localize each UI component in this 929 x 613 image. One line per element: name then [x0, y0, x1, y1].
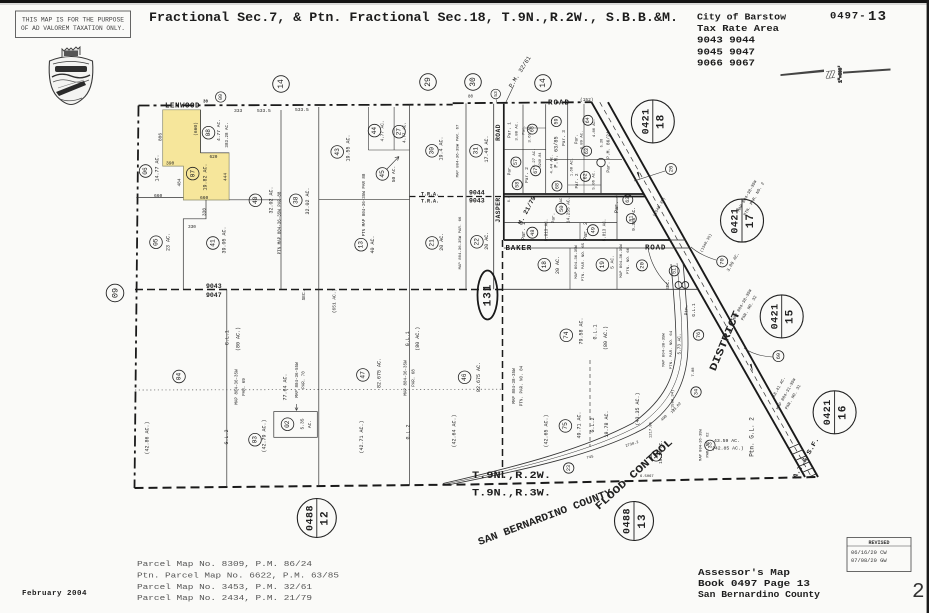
svg-text:21: 21	[429, 239, 436, 247]
svg-text:444: 444	[224, 173, 229, 181]
svg-text:05: 05	[153, 238, 160, 246]
svg-text:T.R.A.: T.R.A.	[421, 199, 439, 205]
svg-text:390: 390	[166, 161, 175, 167]
svg-text:7.88: 7.88	[692, 367, 696, 377]
svg-text:330: 330	[188, 225, 196, 230]
svg-text:G.L.1: G.L.1	[692, 303, 697, 317]
svg-text:MAP 804-36-35W: MAP 804-36-35W	[235, 369, 239, 405]
svg-text:06: 06	[142, 167, 149, 175]
svg-text:4.77 AC.: 4.77 AC.	[216, 119, 222, 141]
svg-text:G.L.2: G.L.2	[590, 417, 596, 432]
svg-text:70: 70	[719, 258, 726, 265]
svg-text:68: 68	[554, 183, 560, 189]
svg-text:67: 67	[533, 168, 539, 174]
svg-text:80: 80	[468, 96, 474, 100]
svg-text:G.L.1: G.L.1	[405, 331, 411, 346]
svg-text:Book 0497 Page 13: Book 0497 Page 13	[698, 579, 810, 589]
svg-text:(42.86 AC.): (42.86 AC.)	[144, 421, 150, 454]
svg-text:City of Barstow: City of Barstow	[697, 12, 786, 23]
svg-text:19.82 AC.: 19.82 AC.	[202, 163, 208, 190]
svg-text:02: 02	[284, 420, 291, 428]
svg-text:22: 22	[474, 238, 481, 246]
svg-text:38: 38	[292, 196, 299, 204]
svg-text:3248.84: 3248.84	[539, 152, 543, 167]
svg-text:ROAD: ROAD	[645, 245, 666, 253]
svg-text:MAP 804-36-35W PAR. 67: MAP 804-36-35W PAR. 67	[457, 124, 461, 177]
svg-text:17.49 AC.: 17.49 AC.	[484, 135, 490, 162]
svg-text:9.356 AC.: 9.356 AC.	[632, 207, 637, 231]
svg-text:13: 13	[637, 513, 649, 528]
svg-text:4.77 AC.: 4.77 AC.	[381, 120, 386, 141]
svg-text:9066 9067: 9066 9067	[697, 58, 755, 69]
svg-text:PAR. NO. 62: PAR. NO. 62	[707, 432, 711, 458]
svg-text:74: 74	[563, 331, 570, 339]
svg-text:26: 26	[667, 166, 674, 173]
svg-text:9043: 9043	[206, 283, 222, 290]
svg-text:40 AC.: 40 AC.	[370, 235, 376, 253]
svg-text:MAP 804-38-35W: MAP 804-38-35W	[513, 368, 517, 404]
svg-text:REVISED: REVISED	[868, 540, 889, 546]
svg-text:34: 34	[693, 389, 699, 395]
svg-text:19.78 AC.: 19.78 AC.	[604, 410, 610, 437]
svg-text:AC.: AC.	[560, 196, 564, 203]
svg-text:484: 484	[177, 178, 182, 186]
svg-text:79.58 AC.: 79.58 AC.	[578, 317, 584, 344]
svg-text:23: 23	[566, 465, 572, 471]
svg-text:49: 49	[589, 227, 596, 234]
svg-text:23 AC.: 23 AC.	[165, 233, 171, 251]
svg-text:PAR. 69: PAR. 69	[243, 378, 247, 396]
svg-text:13: 13	[358, 241, 365, 249]
svg-text:5.35: 5.35	[300, 418, 306, 429]
svg-text:(43.35 AC.): (43.35 AC.)	[635, 392, 641, 425]
svg-text:9043 9044: 9043 9044	[697, 35, 755, 46]
svg-text:(80 AC.): (80 AC.)	[236, 327, 242, 351]
svg-text:(651 AC.): (651 AC.)	[332, 289, 338, 313]
svg-text:6.5067: 6.5067	[640, 475, 654, 479]
svg-text:09: 09	[110, 288, 120, 298]
svg-text:51: 51	[672, 268, 678, 274]
svg-text:MAP 804-36-35W: MAP 804-36-35W	[700, 428, 704, 461]
svg-text:5 AC.: 5 AC.	[610, 255, 616, 269]
svg-text:(42.71 AC.): (42.71 AC.)	[359, 420, 365, 453]
svg-text:G.L.1: G.L.1	[593, 324, 599, 339]
svg-text:Tax Rate Area: Tax Rate Area	[697, 23, 779, 34]
svg-text:30: 30	[469, 77, 478, 87]
svg-text:T.9N.,R.3W.: T.9N.,R.3W.	[472, 489, 551, 500]
svg-text:MAP 804-36-35W: MAP 804-36-35W	[575, 245, 579, 279]
svg-text:32.02 AC.: 32.02 AC.	[305, 187, 311, 214]
svg-text:(42.85 AC.): (42.85 AC.)	[712, 446, 744, 452]
svg-text:12: 12	[320, 510, 332, 525]
svg-text:Parcel Map No. 8309, P.M. 86/2: Parcel Map No. 8309, P.M. 86/24	[137, 561, 312, 569]
svg-text:PTN. NO. 66: PTN. NO. 66	[627, 247, 631, 274]
svg-text:75: 75	[562, 422, 569, 430]
svg-text:0488: 0488	[623, 508, 634, 534]
svg-text:15: 15	[785, 309, 797, 324]
svg-text:2: 2	[912, 581, 925, 604]
svg-text:533.5: 533.5	[295, 107, 309, 113]
svg-text:Par. 2: Par. 2	[576, 173, 580, 189]
svg-text:14.77 AC.: 14.77 AC.	[154, 154, 160, 181]
svg-text:4.27 AC.: 4.27 AC.	[533, 148, 537, 167]
svg-text:63: 63	[625, 197, 631, 203]
svg-text:39.05 AC.: 39.05 AC.	[222, 226, 228, 253]
svg-text:62: 62	[583, 173, 589, 179]
svg-text:76: 76	[696, 332, 702, 338]
svg-text:0421: 0421	[641, 108, 652, 134]
svg-text:41: 41	[210, 239, 217, 247]
svg-text:09: 09	[218, 94, 224, 100]
svg-text:(42.65 AC.): (42.65 AC.)	[544, 414, 550, 447]
svg-text:MAP 804-36-35W PAR. 66: MAP 804-36-35W PAR. 66	[459, 216, 463, 269]
svg-text:G.L.2: G.L.2	[224, 429, 230, 444]
svg-text:(80 AC.): (80 AC.)	[603, 326, 609, 350]
svg-text:620: 620	[210, 155, 218, 160]
svg-text:333: 333	[234, 108, 243, 114]
svg-text:SEC.: SEC.	[665, 279, 671, 290]
svg-text:Parcel Map No. 2434, P.M. 21/7: Parcel Map No. 2434, P.M. 21/79	[137, 595, 312, 603]
svg-text:Par. 1: Par. 1	[508, 122, 513, 138]
svg-text:5.73 AC.: 5.73 AC.	[678, 333, 683, 354]
svg-text:19.4 AC.: 19.4 AC.	[438, 136, 444, 160]
svg-text:27: 27	[396, 128, 403, 136]
svg-text:660: 660	[154, 193, 163, 199]
svg-text:06/16/20 CW: 06/16/20 CW	[851, 550, 887, 556]
svg-text:20: 20	[638, 262, 645, 269]
svg-text:46: 46	[461, 373, 468, 381]
svg-text:Par.: Par.	[522, 125, 527, 135]
svg-text:5.013 AC.: 5.013 AC.	[604, 219, 608, 242]
svg-text:ROAD: ROAD	[548, 100, 570, 108]
svg-text:PTN MAP 804-36-35W PAR 88: PTN MAP 804-36-35W PAR 88	[363, 173, 367, 236]
svg-text:77.64 AC.: 77.64 AC.	[282, 373, 288, 400]
svg-text:20 AC.: 20 AC.	[484, 232, 490, 250]
svg-text:9044: 9044	[469, 190, 485, 197]
svg-text:82.675 AC.: 82.675 AC.	[476, 362, 482, 392]
svg-text:58: 58	[515, 182, 521, 188]
svg-text:(152): (152)	[580, 97, 594, 103]
svg-text:0421: 0421	[770, 303, 781, 329]
svg-text:20 AC.: 20 AC.	[555, 256, 561, 274]
svg-text:THIS MAP IS FOR THE PURPOSE: THIS MAP IS FOR THE PURPOSE	[22, 17, 124, 24]
svg-text:Par.: Par.	[576, 134, 580, 144]
svg-text:BAKER: BAKER	[506, 245, 533, 253]
svg-text:14.255 AC.: 14.255 AC.	[566, 197, 571, 223]
svg-text:9047: 9047	[206, 292, 222, 299]
svg-text:1217.85: 1217.85	[650, 421, 654, 438]
svg-text:Assessor's Map: Assessor's Map	[698, 568, 790, 578]
svg-text:32.02 AC.: 32.02 AC.	[268, 186, 274, 213]
svg-text:3.88 AC.: 3.88 AC.	[516, 121, 520, 140]
svg-text:9045 9047: 9045 9047	[697, 47, 755, 58]
svg-text:82.675 AC.: 82.675 AC.	[376, 358, 382, 388]
svg-text:Parcel Map No. 3453, P.M. 32/6: Parcel Map No. 3453, P.M. 32/61	[137, 584, 312, 592]
svg-text:Par. 2: Par. 2	[525, 167, 530, 183]
svg-text:43: 43	[334, 148, 341, 156]
svg-text:OF AD VALOREM TAXATION ONLY.: OF AD VALOREM TAXATION ONLY.	[21, 25, 125, 32]
svg-text:Ptn. Parcel Map No. 6622, P.M.: Ptn. Parcel Map No. 6622, P.M. 63/85	[137, 573, 339, 581]
svg-text:48: 48	[529, 229, 536, 236]
svg-text:(42.79 AC.): (42.79 AC.)	[262, 419, 268, 452]
svg-text:47: 47	[360, 371, 367, 379]
svg-text:59: 59	[554, 118, 560, 124]
svg-text:1.68 AC.: 1.68 AC.	[571, 158, 575, 176]
svg-text:29: 29	[424, 77, 433, 87]
svg-text:PTN MAP 804-36-35W PAR-88: PTN MAP 804-36-35W PAR-88	[278, 191, 282, 254]
svg-text:MAP 804-36-35W: MAP 804-36-35W	[405, 360, 409, 396]
svg-text:50 AC.: 50 AC.	[391, 166, 397, 183]
svg-text:Par. 3: Par. 3	[562, 130, 567, 146]
svg-text:1"=800': 1"=800'	[839, 65, 844, 83]
svg-text:18: 18	[541, 261, 548, 269]
svg-text:T.R.A.: T.R.A.	[421, 192, 439, 198]
svg-text:64: 64	[585, 117, 591, 123]
svg-text:G.L.2: G.L.2	[405, 424, 411, 439]
svg-text:February 2004: February 2004	[22, 590, 87, 598]
svg-text:45: 45	[379, 170, 386, 178]
svg-text:5.013 AC.: 5.013 AC.	[546, 219, 550, 242]
svg-text:63: 63	[584, 148, 590, 154]
svg-text:Par.: Par.	[508, 165, 513, 176]
svg-text:69: 69	[775, 353, 782, 360]
svg-text:04: 04	[176, 373, 183, 381]
svg-text:Ptn. G.L. 2: Ptn. G.L. 2	[749, 417, 756, 457]
svg-text:MAP 804-38-35W: MAP 804-38-35W	[663, 333, 667, 367]
svg-text:4.77 AC.: 4.77 AC.	[403, 122, 408, 143]
svg-text:ROAD: ROAD	[495, 124, 502, 141]
svg-text:San Bernardino County: San Bernardino County	[698, 590, 821, 600]
svg-text:0421: 0421	[823, 399, 834, 425]
svg-text:AC.: AC.	[307, 420, 313, 428]
svg-text:57: 57	[513, 159, 519, 165]
svg-text:383.28 AC.: 383.28 AC.	[226, 122, 230, 147]
svg-text:07/08/20 GW: 07/08/20 GW	[851, 558, 887, 564]
svg-text:5.06 AC.: 5.06 AC.	[592, 170, 596, 189]
svg-text:53: 53	[493, 91, 499, 97]
svg-text:LENWOOD: LENWOOD	[165, 103, 200, 111]
svg-text:Par. 2: Par. 2	[583, 222, 589, 240]
svg-text:533.5: 533.5	[257, 108, 271, 114]
svg-text:G.L.1: G.L.1	[225, 330, 231, 345]
svg-text:0.0: 0.0	[508, 196, 512, 202]
svg-text:JASPER: JASPER	[495, 197, 502, 222]
svg-text:14: 14	[539, 78, 548, 88]
svg-text:30: 30	[203, 101, 209, 105]
svg-text:PTN. PAR. NO. 65: PTN. PAR. NO. 65	[582, 242, 586, 281]
svg-text:3.61 AC.: 3.61 AC.	[529, 123, 533, 142]
svg-text:44: 44	[371, 127, 378, 135]
svg-text:30: 30	[429, 147, 436, 155]
svg-text:660: 660	[200, 195, 209, 201]
svg-text:19.11 AC.: 19.11 AC.	[659, 440, 664, 464]
svg-text:MAP 804-36-35W: MAP 804-36-35W	[620, 244, 624, 278]
svg-text:4.80 AC.: 4.80 AC.	[593, 119, 597, 137]
svg-text:20 AC.: 20 AC.	[439, 233, 445, 251]
svg-text:PAR. 70: PAR. 70	[303, 371, 307, 389]
svg-text:PAR. 68: PAR. 68	[413, 369, 417, 387]
svg-text:19: 19	[599, 261, 606, 269]
svg-text:806: 806	[158, 133, 163, 141]
svg-text:19.55 AC.: 19.55 AC.	[346, 134, 352, 161]
svg-text:13: 13	[868, 9, 887, 25]
svg-text:14: 14	[277, 79, 286, 89]
svg-text:PTN. PAR. NO. 64: PTN. PAR. NO. 64	[670, 330, 674, 369]
svg-text:50: 50	[558, 205, 565, 212]
svg-text:49.71 AC.: 49.71 AC.	[577, 411, 583, 438]
svg-text:16: 16	[838, 405, 850, 420]
svg-text:0488: 0488	[305, 505, 316, 531]
svg-text:Par.: Par.	[552, 213, 557, 224]
svg-text:P.M. 63/85: P.M. 63/85	[554, 136, 560, 167]
svg-text:(80 AC.): (80 AC.)	[415, 327, 421, 351]
svg-text:Ptn.: Ptn.	[685, 305, 690, 316]
svg-text:PTN. PAR. NO. 04: PTN. PAR. NO. 04	[520, 365, 524, 406]
svg-text:08: 08	[205, 129, 212, 137]
svg-text:Par. P.M. 86/24: Par. P.M. 86/24	[606, 131, 612, 173]
svg-text:18: 18	[656, 114, 668, 129]
svg-text:5.28: 5.28	[600, 139, 604, 148]
svg-text:330: 330	[203, 208, 208, 216]
svg-text:31: 31	[473, 147, 480, 155]
svg-text:9043: 9043	[469, 198, 485, 205]
svg-text:Fractional Sec.7, & Ptn. Fract: Fractional Sec.7, & Ptn. Fractional Sec.…	[149, 10, 678, 25]
svg-text:07: 07	[189, 170, 196, 178]
svg-text:T.9N.,R.2W.: T.9N.,R.2W.	[472, 471, 551, 482]
svg-text:0497-: 0497-	[830, 11, 867, 23]
svg-text:(660): (660)	[193, 122, 199, 136]
svg-text:131: 131	[482, 284, 494, 307]
svg-text:(42.64 AC.): (42.64 AC.)	[452, 414, 458, 447]
svg-text:SEC.: SEC.	[301, 290, 307, 301]
svg-text:40: 40	[252, 196, 259, 204]
svg-text:Par. 4: Par. 4	[614, 195, 620, 213]
svg-text:MAP 804-36-55W: MAP 804-36-55W	[296, 362, 300, 398]
svg-text:43.59 AC.: 43.59 AC.	[714, 438, 740, 444]
svg-text:03: 03	[252, 436, 259, 444]
svg-text:4.89 AC.: 4.89 AC.	[581, 130, 585, 149]
